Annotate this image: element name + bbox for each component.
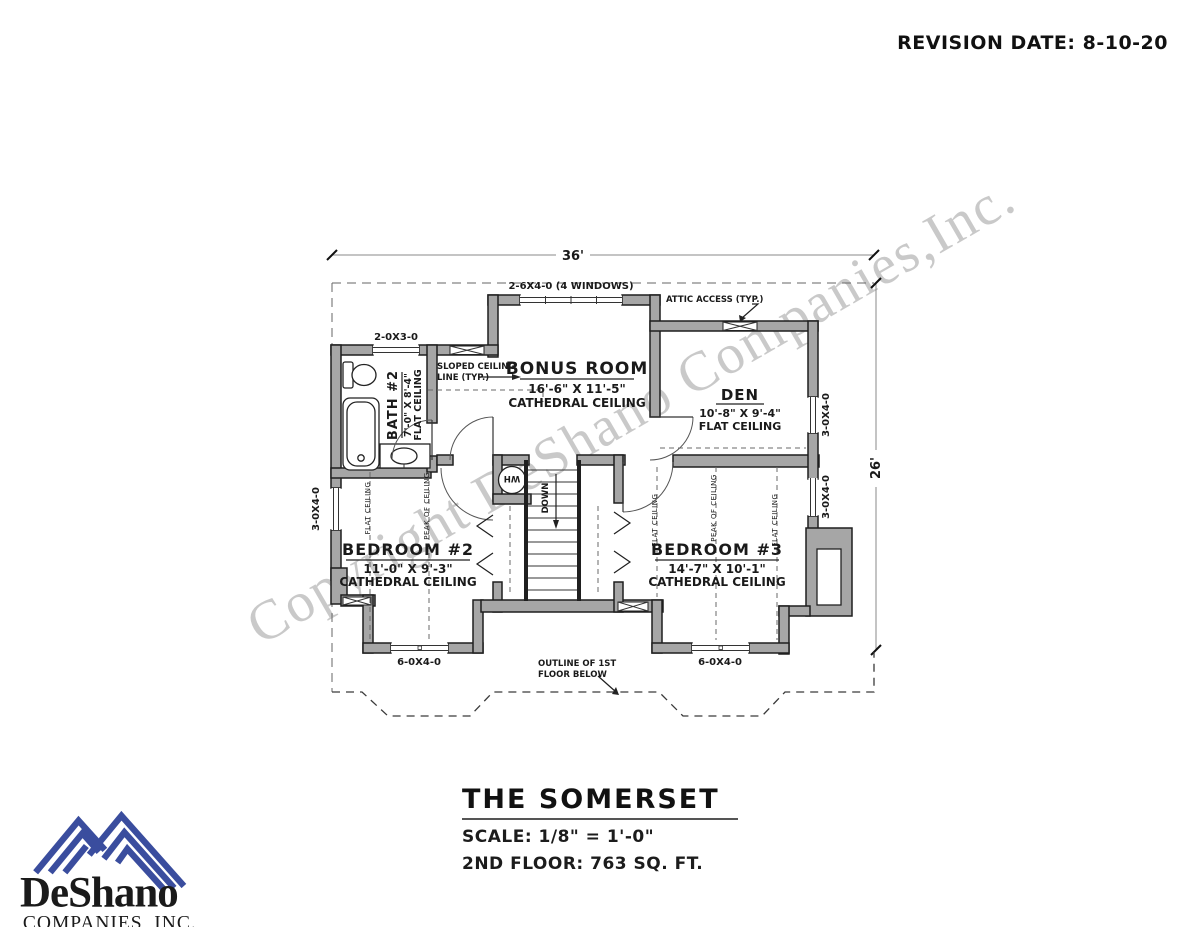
- water-heater: WH: [499, 467, 526, 494]
- bedroom3-size: 14'-7" X 10'-1": [668, 562, 766, 576]
- peak-ceiling-tag: PEAK OF CEILING: [423, 472, 431, 540]
- window-bath-top: [373, 346, 419, 355]
- deshano-logo: DeShano COMPANIES, INC.: [20, 806, 220, 927]
- window-label: 2-0X3-0: [374, 332, 418, 343]
- window-label: 6-0X4-0: [698, 657, 742, 668]
- outline-label-1: OUTLINE OF 1ST: [538, 659, 616, 669]
- window-left: [332, 488, 341, 530]
- toilet: [343, 362, 376, 388]
- annotation-attic: ATTIC ACCESS (TYP.): [666, 295, 763, 322]
- bonus-room-ceiling: CATHEDRAL CEILING: [508, 396, 645, 410]
- den-ceiling: FLAT CEILING: [699, 420, 782, 433]
- window-bedroom3-bottom: [692, 644, 749, 653]
- plan-title: THE SOMERSET: [462, 784, 738, 820]
- bedroom2-name: BEDROOM #2: [342, 540, 474, 559]
- attic-access-label: ATTIC ACCESS (TYP.): [666, 295, 763, 305]
- flat-ceiling-tag: FLAT CEILING: [364, 482, 372, 535]
- stairs-down-label: DOWN: [541, 483, 551, 514]
- outline-label-2: FLOOR BELOW: [538, 670, 608, 680]
- window-label: 3-0X4-0: [311, 487, 322, 531]
- bedroom3-name: BEDROOM #3: [651, 540, 783, 559]
- water-heater-label: WH: [504, 473, 521, 483]
- stair-treads: [528, 470, 577, 590]
- vanity-sink: [380, 444, 430, 468]
- room-label-bedroom2: BEDROOM #2 11'-0" X 9'-3" CATHEDRAL CEIL…: [339, 540, 476, 589]
- chimney-flue: [817, 549, 841, 605]
- window-bedroom2-bottom: [391, 644, 448, 653]
- sloped-ceiling-label-2: LINE (TYP.): [437, 373, 489, 383]
- plan-scale: SCALE: 1/8" = 1'-0": [462, 827, 738, 847]
- room-label-bonus: BONUS ROOM 16'-6" X 11'-5" CATHEDRAL CEI…: [506, 359, 649, 410]
- dim-width-label: 36': [562, 249, 584, 264]
- bedroom3-ceiling: CATHEDRAL CEILING: [648, 575, 785, 589]
- staircase: DOWN: [524, 460, 581, 601]
- logo-subtitle: COMPANIES, INC.: [23, 913, 197, 927]
- peak-ceiling-tag: PEAK OF CEILING: [710, 474, 718, 542]
- window-label: 6-0X4-0: [397, 657, 441, 668]
- den-size: 10'-8" X 9'-4": [699, 407, 781, 420]
- bedroom2-size: 11'-0" X 9'-3": [363, 562, 452, 576]
- window-label: 2-6X4-0 (4 WINDOWS): [508, 281, 633, 292]
- room-label-den: DEN 10'-8" X 9'-4" FLAT CEILING: [699, 386, 782, 433]
- sloped-ceiling-label-1: SLOPED CEILING: [437, 362, 515, 372]
- dim-depth-label: 26': [869, 457, 884, 479]
- bonus-room-name: BONUS ROOM: [506, 359, 649, 379]
- den-name: DEN: [721, 386, 759, 404]
- bathtub: [343, 398, 379, 470]
- bath-name: BATH #2: [386, 370, 401, 440]
- title-block: THE SOMERSET SCALE: 1/8" = 1'-0" 2ND FLO…: [462, 784, 738, 874]
- floor-plan-sheet: REVISION DATE: 8-10-20 Copyright DeShano…: [0, 0, 1200, 927]
- bedroom2-ceiling: CATHEDRAL CEILING: [339, 575, 476, 589]
- window-bedroom3-right: [809, 478, 818, 516]
- flat-ceiling-tag: FLAT CEILING: [651, 494, 659, 547]
- logo-wordmark: DeShano: [20, 869, 178, 916]
- plan-floor-info: 2ND FLOOR: 763 SQ. FT.: [462, 854, 738, 874]
- flat-ceiling-tag: FLAT CEILING: [771, 494, 779, 547]
- ceiling-tags: FLAT CEILING PEAK OF CEILING FLAT CEILIN…: [364, 472, 779, 546]
- window-den-right: [809, 397, 818, 433]
- window-bonus-top: [520, 296, 622, 305]
- room-label-bedroom3: BEDROOM #3 14'-7" X 10'-1" CATHEDRAL CEI…: [648, 540, 785, 589]
- room-label-bath: BATH #2 7'-0" X 8'-4" FLAT CEILING: [386, 369, 424, 440]
- bonus-room-size: 16'-6" X 11'-5": [528, 382, 626, 396]
- bath-ceiling: FLAT CEILING: [413, 369, 424, 440]
- window-label: 3-0X4-0: [821, 475, 832, 519]
- window-label: 3-0X4-0: [821, 393, 832, 437]
